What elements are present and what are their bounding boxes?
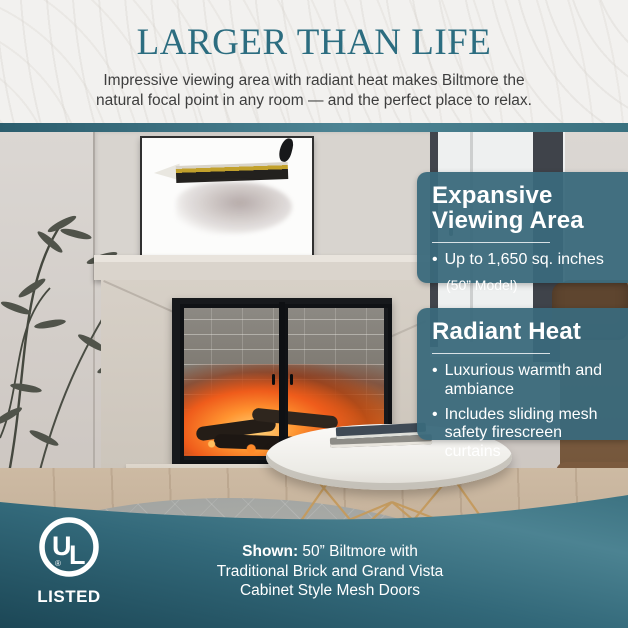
framed-artwork	[140, 136, 314, 258]
photo-caption: Shown: 50” Biltmore with Traditional Bri…	[150, 542, 510, 601]
callout-expansive-viewing-area: Expansive Viewing Area • Up to 1,650 sq.…	[417, 172, 628, 283]
callout-radiant-heat: Radiant Heat • Luxurious warmth and ambi…	[417, 308, 628, 440]
bullet-item: • Luxurious warmth and ambiance	[432, 362, 618, 399]
bullet-subtext: (50” Model)	[432, 277, 618, 293]
caption-line-1: Shown: 50” Biltmore with	[150, 542, 510, 562]
artwork-pencil	[176, 162, 289, 183]
artwork-accent	[277, 137, 294, 163]
artwork-wash	[176, 182, 292, 234]
registered-mark: ®	[55, 559, 61, 568]
door-handle-right	[290, 374, 293, 385]
bullet-text: Includes sliding mesh safety firescreen …	[445, 406, 618, 461]
subtitle-line-1: Impressive viewing area with radiant hea…	[0, 71, 628, 91]
caption-shown-label: Shown:	[242, 543, 298, 560]
caption-line-3: Cabinet Style Mesh Doors	[150, 581, 510, 601]
promo-poster: LARGER THAN LIFE Impressive viewing area…	[0, 0, 628, 628]
teal-divider-bar	[0, 123, 628, 132]
callout-title: Radiant Heat	[432, 319, 618, 344]
subtitle-line-2: natural focal point in any room — and th…	[0, 91, 628, 111]
caption-line-1-rest: 50” Biltmore with	[298, 543, 418, 560]
ul-listed-logo: U L ® LISTED	[34, 514, 104, 607]
bullet-text: Luxurious warmth and ambiance	[445, 362, 618, 399]
bullet-item: • Includes sliding mesh safety firescree…	[432, 406, 618, 461]
mantel-shelf	[94, 255, 430, 280]
bullet-item: • Up to 1,650 sq. inches	[432, 251, 618, 269]
callout-title: Expansive Viewing Area	[432, 183, 618, 233]
callout-divider	[432, 242, 550, 243]
subtitle: Impressive viewing area with radiant hea…	[0, 71, 628, 111]
ul-circle-mark: U L ®	[36, 514, 102, 580]
ul-letter-l: L	[69, 540, 86, 570]
header-section: LARGER THAN LIFE Impressive viewing area…	[0, 0, 628, 123]
door-center-divider	[279, 302, 285, 458]
bullet-text: Up to 1,650 sq. inches	[445, 251, 604, 269]
bullet-icon: •	[432, 406, 438, 461]
bullet-icon: •	[432, 251, 438, 269]
footer-band: U L ® LISTED Shown: 50” Biltmore with Tr…	[0, 488, 628, 628]
page-title: LARGER THAN LIFE	[0, 0, 628, 63]
ul-listed-label: LISTED	[34, 587, 104, 607]
caption-line-2: Traditional Brick and Grand Vista	[150, 562, 510, 582]
bullet-icon: •	[432, 362, 438, 399]
callout-divider	[432, 353, 550, 354]
door-handle-left	[272, 374, 275, 385]
